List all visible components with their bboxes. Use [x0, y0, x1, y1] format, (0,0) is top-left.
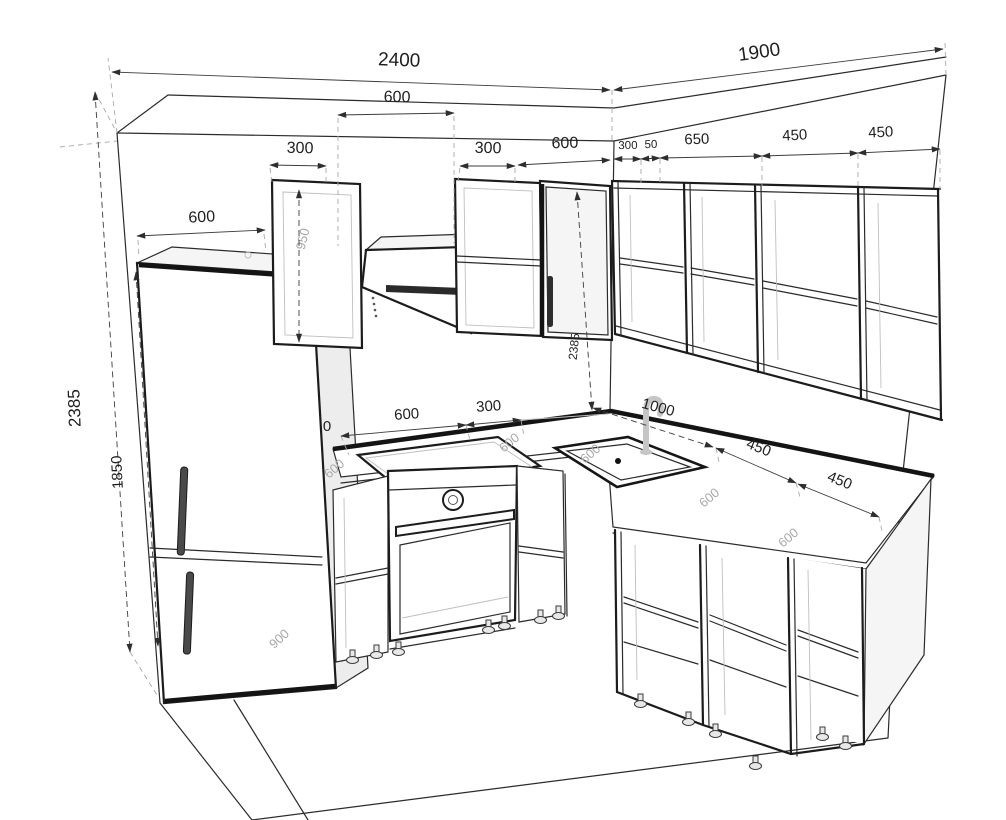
dim-label-wall-height-corner: 2385: [566, 332, 583, 360]
dim-label-upper-left-600: 600: [551, 135, 578, 152]
wall-cabinet-300-left-box: [272, 180, 362, 348]
dim-label-worktop-600: 600: [394, 405, 420, 424]
dim-line-wall-height-left: [95, 92, 130, 652]
wall-top-edge: [117, 75, 946, 141]
wall-cabinet-300-left: 950: [272, 180, 362, 348]
hood-button-icon: [373, 303, 376, 306]
kitchen-technical-drawing: 900 950: [0, 0, 1006, 820]
drawing-canvas: 900 950: [0, 0, 1006, 820]
extension-line: [138, 240, 139, 258]
dim-line-upper-left-600: [518, 160, 610, 165]
extension-line: [264, 234, 266, 252]
base-cabinet-right-of-oven: [517, 466, 567, 622]
dim-label-worktop-0: 0: [323, 418, 331, 435]
base-cabinet-left-of-oven: [333, 476, 388, 662]
corner-wall-cabinet-door-panel: [546, 187, 608, 335]
dim-line-upper-right-650: [660, 156, 762, 158]
dim-label-upper-right-450a: 450: [782, 126, 808, 144]
dim-line-upper-left-300a: [270, 165, 326, 166]
extension-line: [95, 92, 116, 131]
corner-wall-cabinet-handle: [547, 276, 553, 327]
sink-drain-icon: [615, 458, 621, 464]
dim-label-right-wall-total: 1900: [737, 39, 782, 66]
dim-line-upper-right-50: [641, 158, 660, 159]
base-cabinet-right-box: [517, 466, 565, 622]
extension-line: [60, 141, 117, 147]
floor-edge-left-2: [234, 700, 308, 820]
floor-front-edge: [252, 738, 888, 820]
dim-label-upper-right-450b: 450: [868, 123, 894, 141]
dim-label-wall-height-left: 2385: [64, 389, 84, 427]
extension-line: [108, 58, 117, 133]
oven: [388, 466, 517, 649]
dim-label-fridge-height: 1850: [108, 455, 127, 489]
extension-line: [130, 652, 157, 695]
floor-edge-left: [160, 703, 252, 820]
faucet-base: [640, 449, 652, 455]
ceiling-edge: [168, 57, 946, 108]
cabinet-leg: [750, 756, 762, 770]
dim-label-left-wall-total: 2400: [378, 49, 421, 71]
dim-label-upper-right-300: 300: [618, 140, 637, 152]
wall-cabinets-right: [612, 181, 942, 420]
ceiling-fold-edge: [117, 95, 168, 133]
dim-label-worktop-300: 300: [476, 397, 502, 416]
hood-button-icon: [375, 315, 378, 318]
extension-line: [945, 42, 946, 75]
corner-wall-cabinet-door: [540, 181, 612, 340]
dim-line-hood-width: [338, 113, 454, 115]
wall-cabinet-300-right: [455, 179, 542, 336]
dim-label-upper-left-300b: 300: [475, 140, 502, 157]
dim-label-upper-left-300a: 300: [287, 140, 314, 157]
oven-knob-icon: [443, 490, 463, 510]
dim-label-hood-width: 600: [384, 89, 411, 106]
hood-button-icon: [374, 309, 377, 312]
dim-label-upper-right-650: 650: [684, 131, 710, 149]
dim-line-upper-right-450a: [762, 153, 858, 156]
right-run-front-plane: [615, 530, 866, 744]
dim-line-fridge-depth: [137, 230, 265, 236]
dim-line-left-wall-total: [112, 72, 610, 90]
dim-label-fridge-depth: 600: [188, 208, 216, 226]
dim-line-upper-right-450b: [858, 149, 940, 153]
dim-label-upper-right-50: 50: [644, 139, 657, 151]
hood-button-icon: [372, 297, 375, 300]
